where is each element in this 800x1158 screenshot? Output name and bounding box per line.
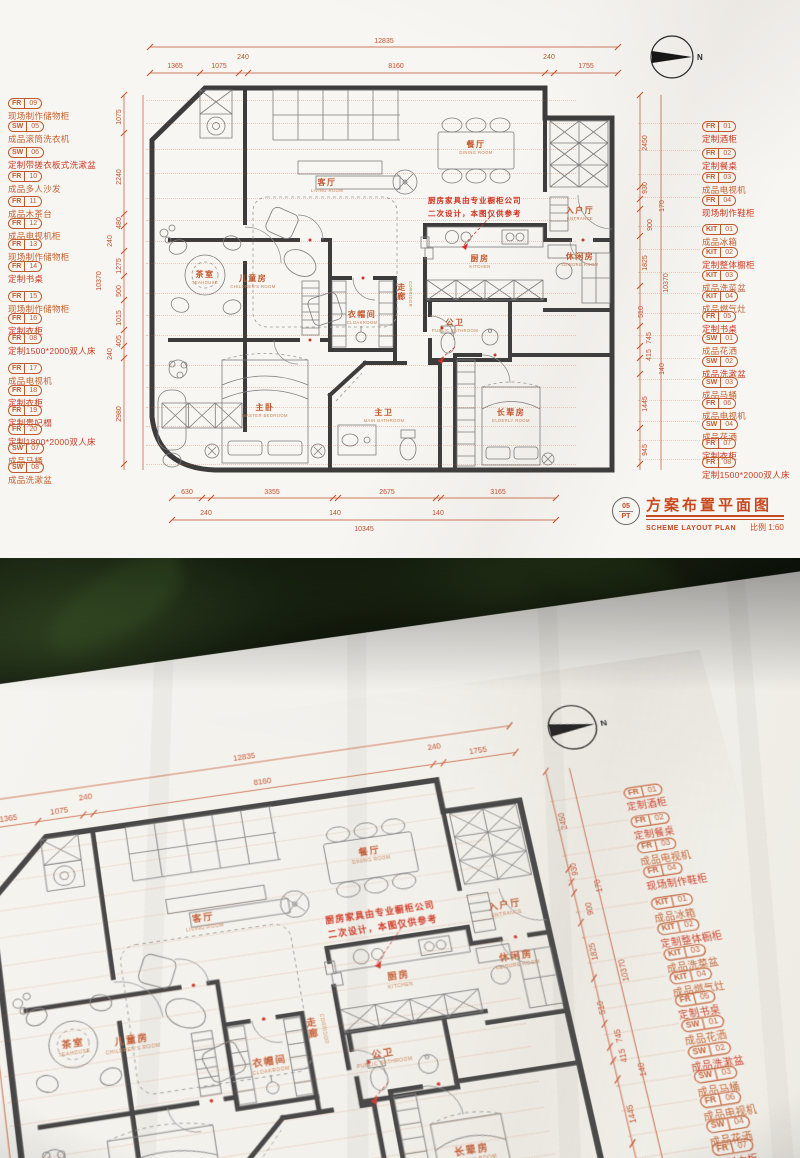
kitchen-note: 厨房家具由专业橱柜公司 二次设计，本图仅供参考 (428, 195, 584, 221)
svg-text:CORRIDOR: CORRIDOR (408, 281, 413, 307)
room-label-living: 客厅 (317, 177, 337, 187)
drawing-title-en: SCHEME LAYOUT PLAN (646, 525, 736, 532)
title-rule (646, 515, 784, 520)
legend-tag: FR08 (8, 333, 42, 344)
room-label-pubbath: 公卫 (446, 318, 465, 327)
legend-tag: SW02 (702, 356, 738, 367)
room-label-cloak: 衣帽间 (348, 309, 377, 319)
legend-tag: FR20 (8, 424, 42, 435)
svg-text:DINING ROOM: DINING ROOM (459, 150, 492, 155)
photo-of-printed-plan: FR09现场制作储物柜 SW05成品滚筒洗衣机 SW06定制带搓衣板式洗漱盆 F… (0, 558, 800, 1158)
svg-text:MAIN BATHROOM: MAIN BATHROOM (364, 418, 405, 423)
legend-tag: SW05 (8, 121, 44, 132)
svg-text:N: N (599, 718, 608, 728)
svg-text:140: 140 (432, 510, 444, 517)
svg-text:1445: 1445 (642, 396, 649, 412)
svg-text:ELDERLY ROOM: ELDERLY ROOM (492, 418, 530, 423)
svg-text:1075: 1075 (50, 805, 70, 816)
drawing-scale: 比例 1:60 (750, 522, 784, 533)
room-label-tea: 茶室 (60, 1036, 85, 1051)
legend-item: FR04现场制作鞋柜 (702, 189, 798, 219)
svg-text:140: 140 (329, 510, 341, 517)
dim-bottom-total: 10345 (354, 526, 374, 533)
legend-tag: FR02 (702, 148, 736, 159)
leaf-shape (33, 558, 198, 662)
svg-text:510: 510 (638, 306, 645, 318)
svg-text:CLOAKROOM: CLOAKROOM (347, 320, 378, 325)
svg-text:240: 240 (543, 54, 555, 61)
sheet-number-bubble: 05 PT (612, 497, 640, 525)
svg-text:240: 240 (427, 742, 442, 752)
paper-sheet: FR09现场制作储物柜 SW05成品滚筒洗衣机 SW06定制带搓衣板式洗漱盆 F… (0, 558, 800, 1158)
legend-tag: FR06 (702, 398, 736, 409)
svg-text:240: 240 (78, 792, 93, 802)
svg-text:1755: 1755 (578, 63, 594, 70)
svg-text:745: 745 (646, 332, 653, 344)
svg-text:945: 945 (642, 444, 649, 456)
dim-top-total: 12835 (374, 38, 394, 45)
legend-tag: FR17 (8, 363, 42, 374)
legend-tag: SW03 (702, 377, 738, 388)
legend-tag: SW04 (702, 419, 738, 430)
legend-item: FR08定制1500*2000双人床 (702, 451, 798, 481)
svg-text:N: N (697, 53, 703, 62)
legend-tag: FR10 (8, 171, 42, 182)
svg-text:930: 930 (568, 862, 580, 876)
legend-tag: FR14 (8, 261, 42, 272)
printed-plan-copy: FR09现场制作储物柜 SW05成品滚筒洗衣机 SW06定制带搓衣板式洗漱盆 F… (0, 650, 800, 1158)
svg-text:TEAHOUSE: TEAHOUSE (192, 280, 218, 285)
room-label-elder: 长辈房 (497, 407, 526, 417)
north-arrow-icon: N (651, 36, 703, 78)
svg-text:1365: 1365 (0, 813, 18, 824)
note-line: 二次设计，本图仅供参考 (428, 208, 584, 221)
legend-tag: FR08 (702, 457, 736, 468)
floor-plan: 茶室 TEAHOUSE 客厅 LIVING ROOM 餐厅 DINING ROO… (152, 88, 612, 470)
title-block: 05 PT 方案布置平面图 SCHEME LAYOUT PLAN 比例 1:60 (612, 497, 784, 533)
svg-text:MASTER BEDROOM: MASTER BEDROOM (242, 413, 288, 418)
legend-tag: FR19 (8, 405, 42, 416)
room-label-corridor: 走廊 (396, 282, 407, 301)
legend-tag: FR15 (8, 291, 42, 302)
north-arrow-icon: N (544, 701, 613, 752)
room-label-mainbath: 主卫 (375, 407, 394, 417)
legend-tag: KIT02 (702, 247, 738, 258)
legend-tag: SW07 (8, 443, 44, 454)
legend-tag: SW08 (8, 462, 44, 473)
svg-text:630: 630 (181, 489, 193, 496)
page: FR09现场制作储物柜 SW05成品滚筒洗衣机 SW06定制带搓衣板式洗漱盆 F… (0, 0, 800, 1158)
svg-text:2675: 2675 (379, 489, 395, 496)
dim-right-total: 10370 (616, 958, 631, 982)
legend-item: FR01定制酒柜 (702, 115, 798, 145)
svg-text:170: 170 (592, 878, 604, 893)
floor-plan-sheet: FR09现场制作储物柜 SW05成品滚筒洗衣机 SW06定制带搓衣板式洗漱盆 F… (0, 0, 800, 558)
legend-tag: FR04 (702, 195, 736, 206)
drawing-title-cn: 方案布置平面图 (646, 497, 784, 514)
legend-tag: FR07 (702, 438, 736, 449)
legend-tag: FR12 (8, 218, 42, 229)
svg-text:1365: 1365 (167, 63, 183, 70)
svg-text:KITCHEN: KITCHEN (469, 264, 490, 269)
legend-item: FR08定制1500*2000双人床 (8, 327, 158, 357)
svg-text:140: 140 (659, 363, 666, 375)
svg-text:930: 930 (642, 182, 649, 194)
note-line: 厨房家具由专业橱柜公司 (428, 195, 584, 208)
legend-tag: FR03 (702, 172, 736, 183)
svg-text:140: 140 (636, 1061, 649, 1077)
legend-item: SW08成品洗漱盆 (8, 456, 158, 486)
room-label-living: 客厅 (190, 911, 215, 925)
dim-top-total: 12835 (232, 752, 256, 763)
svg-text:1445: 1445 (625, 1103, 639, 1123)
svg-text:PUBLIC BATHROOM: PUBLIC BATHROOM (432, 328, 478, 333)
svg-text:170: 170 (659, 200, 666, 212)
legend-tag: FR05 (702, 311, 736, 322)
legend-tag: SW01 (702, 333, 738, 344)
floor-plan: 茶室 TEAHOUSE 客厅 LIVING ROOM 餐厅 DINING ROO… (0, 769, 610, 1158)
legend-tag: KIT03 (702, 270, 738, 281)
room-label-dining: 餐厅 (466, 139, 486, 149)
svg-text:2450: 2450 (642, 135, 649, 151)
dim-right-total: 10370 (663, 273, 670, 293)
legend-tag: KIT01 (702, 224, 738, 235)
legend-tag: FR16 (8, 313, 42, 324)
svg-text:1755: 1755 (468, 745, 488, 756)
svg-text:240: 240 (237, 54, 249, 61)
room-label-children: 儿童房 (238, 273, 268, 283)
svg-text:3165: 3165 (490, 489, 506, 496)
svg-text:745: 745 (612, 1028, 625, 1043)
room-label-leisure: 休闲房 (565, 251, 595, 261)
legend-tag: SW06 (8, 147, 44, 158)
legend-tag: FR13 (8, 239, 42, 250)
svg-text:900: 900 (647, 219, 654, 231)
room-label-pubbath: 公卫 (371, 1047, 396, 1061)
svg-text:1075: 1075 (211, 63, 227, 70)
legend-tag: FR09 (8, 98, 42, 109)
room-label-tea: 茶室 (195, 269, 215, 279)
legend-tag: KIT04 (702, 291, 738, 302)
svg-text:3355: 3355 (264, 489, 280, 496)
svg-text:415: 415 (646, 349, 653, 361)
svg-text:8160: 8160 (253, 776, 273, 787)
legend-item: FR14定制书桌 (8, 255, 158, 285)
svg-text:240: 240 (200, 510, 212, 517)
floor-plan-sheet: FR09现场制作储物柜 SW05成品滚筒洗衣机 SW06定制带搓衣板式洗漱盆 F… (0, 650, 800, 1158)
svg-text:CHILDREN'S ROOM: CHILDREN'S ROOM (230, 284, 275, 289)
room-label-kitchen: 厨房 (471, 253, 490, 263)
svg-text:LIVING ROOM: LIVING ROOM (311, 188, 343, 193)
svg-text:1825: 1825 (642, 255, 649, 271)
legend-tag: FR18 (8, 385, 42, 396)
legend-tag: FR11 (8, 196, 42, 207)
svg-text:8160: 8160 (388, 63, 404, 70)
legend-tag: FR01 (702, 121, 736, 132)
